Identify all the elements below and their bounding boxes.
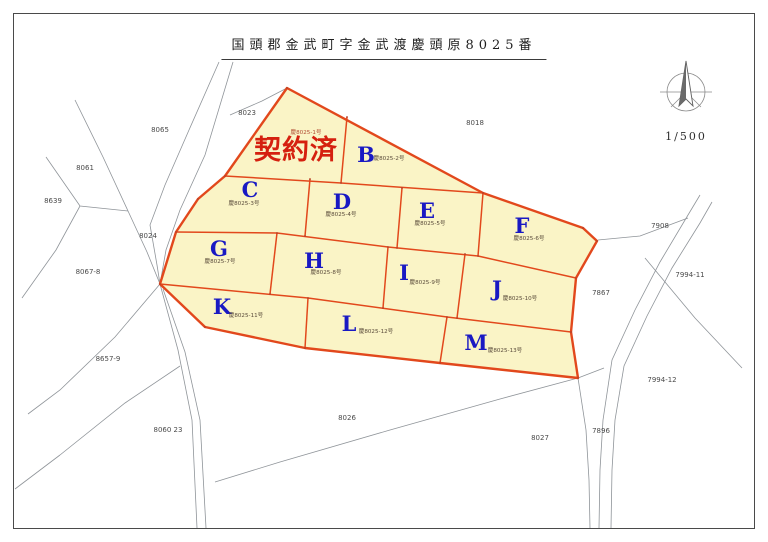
boundary-vertex-marker bbox=[396, 247, 398, 249]
boundary-vertex-marker bbox=[159, 283, 161, 285]
boundary-vertex-marker bbox=[439, 362, 441, 364]
bg-parcel-line bbox=[598, 218, 688, 240]
boundary-vertex-marker bbox=[269, 293, 271, 295]
lot-sublabel-M: 慶8025-13号 bbox=[488, 346, 523, 354]
lot-sublabel-J: 慶8025-10号 bbox=[503, 294, 538, 302]
neighbor-parcel-label: 8027 bbox=[531, 434, 549, 442]
neighbor-parcel-label: 7994-11 bbox=[675, 271, 704, 279]
boundary-vertex-marker bbox=[577, 377, 579, 379]
lot-letter-L: L bbox=[342, 311, 357, 336]
bg-parcel-line bbox=[163, 289, 206, 528]
boundary-vertex-marker bbox=[582, 227, 584, 229]
lot-letter-B: B bbox=[357, 142, 375, 167]
boundary-vertex-marker bbox=[309, 178, 311, 180]
neighbor-parcel-label: 7896 bbox=[592, 427, 610, 435]
status-sold-label: 契約済 bbox=[254, 134, 338, 166]
neighbor-parcel-label: 8026 bbox=[338, 414, 356, 422]
lot-sublabel-C: 慶8025-3号 bbox=[228, 199, 259, 207]
plat-sheet: 802380658061863980248067-88657-98060 238… bbox=[0, 0, 768, 542]
neighbor-parcel-label: 8023 bbox=[238, 109, 256, 117]
boundary-vertex-marker bbox=[204, 326, 206, 328]
map-title: 国頭郡金武町字金武渡慶頭原8025番 bbox=[221, 34, 546, 60]
lot-letter-E: E bbox=[419, 198, 435, 223]
boundary-vertex-marker bbox=[382, 307, 384, 309]
neighbor-parcel-label: 7867 bbox=[592, 289, 610, 297]
lot-sublabel-B: 慶8025-2号 bbox=[373, 154, 404, 162]
lot-letter-D: D bbox=[333, 189, 351, 214]
lot-sublabel-K: 慶8025-11号 bbox=[229, 311, 264, 319]
boundary-vertex-marker bbox=[477, 255, 479, 257]
boundary-vertex-marker bbox=[197, 198, 199, 200]
neighbor-parcel-label: 8061 bbox=[76, 164, 94, 172]
lot-letter-F: F bbox=[515, 213, 530, 238]
lot-letter-J: J bbox=[490, 276, 502, 301]
neighbor-parcel-label: 8018 bbox=[466, 119, 484, 127]
boundary-vertex-marker bbox=[596, 240, 598, 242]
lot-letter-M: M bbox=[464, 330, 487, 355]
boundary-vertex-marker bbox=[387, 246, 389, 248]
neighbor-parcel-label: 8657-9 bbox=[96, 355, 121, 363]
boundary-vertex-marker bbox=[575, 277, 577, 279]
neighbor-parcel-label: 7908 bbox=[651, 222, 669, 230]
boundary-vertex-marker bbox=[401, 187, 403, 189]
bg-parcel-line bbox=[22, 206, 80, 298]
bg-parcel-line bbox=[75, 100, 160, 284]
lot-letter-G: G bbox=[210, 236, 228, 261]
bg-parcel-line bbox=[15, 455, 60, 489]
lot-sublabel-H: 慶8025-8号 bbox=[310, 268, 341, 276]
scale-label: 1/500 bbox=[656, 130, 716, 143]
lot-sublabel-I: 慶8025-9号 bbox=[409, 278, 440, 286]
boundary-vertex-marker bbox=[307, 297, 309, 299]
north-compass-icon bbox=[656, 58, 716, 124]
cadastral-map: 802380658061863980248067-88657-98060 238… bbox=[0, 0, 768, 542]
lot-sublabel-F: 慶8025-6号 bbox=[513, 234, 544, 242]
boundary-vertex-marker bbox=[224, 175, 226, 177]
bg-parcel-line bbox=[578, 378, 590, 528]
bg-parcel-line bbox=[28, 284, 160, 414]
neighbor-parcel-label: 8639 bbox=[44, 197, 62, 205]
lot-sublabel-D: 慶8025-4号 bbox=[325, 210, 356, 218]
lot-letter-C: C bbox=[242, 177, 259, 202]
lot-sublabel-E: 慶8025-5号 bbox=[414, 219, 445, 227]
bg-parcel-line bbox=[215, 378, 578, 482]
neighbor-parcel-label: 8060 23 bbox=[154, 426, 183, 434]
boundary-vertex-marker bbox=[570, 331, 572, 333]
boundary-vertex-marker bbox=[346, 116, 348, 118]
boundary-vertex-marker bbox=[456, 317, 458, 319]
bg-parcel-line bbox=[160, 284, 197, 528]
boundary-vertex-marker bbox=[482, 192, 484, 194]
lot-letter-I: I bbox=[399, 260, 409, 285]
boundary-vertex-marker bbox=[340, 182, 342, 184]
neighbor-parcel-label: 8024 bbox=[139, 232, 157, 240]
bg-parcel-line bbox=[611, 202, 712, 528]
compass: 1/500 bbox=[656, 58, 716, 143]
neighbor-parcel-label: 8067-8 bbox=[76, 268, 101, 276]
boundary-vertex-marker bbox=[464, 253, 466, 255]
neighbor-parcel-label: 8065 bbox=[151, 126, 169, 134]
boundary-vertex-marker bbox=[175, 231, 177, 233]
neighbor-parcel-label: 7994-12 bbox=[647, 376, 676, 384]
bg-parcel-line bbox=[578, 368, 604, 378]
boundary-vertex-marker bbox=[304, 235, 306, 237]
boundary-vertex-marker bbox=[304, 347, 306, 349]
lot-sublabel-G: 慶8025-7号 bbox=[204, 257, 235, 265]
lot-sublabel-L: 慶8025-12号 bbox=[359, 327, 394, 335]
bg-parcel-line bbox=[60, 366, 180, 455]
bg-parcel-line bbox=[599, 195, 700, 528]
boundary-vertex-marker bbox=[276, 232, 278, 234]
boundary-vertex-marker bbox=[286, 87, 288, 89]
boundary-vertex-marker bbox=[446, 316, 448, 318]
